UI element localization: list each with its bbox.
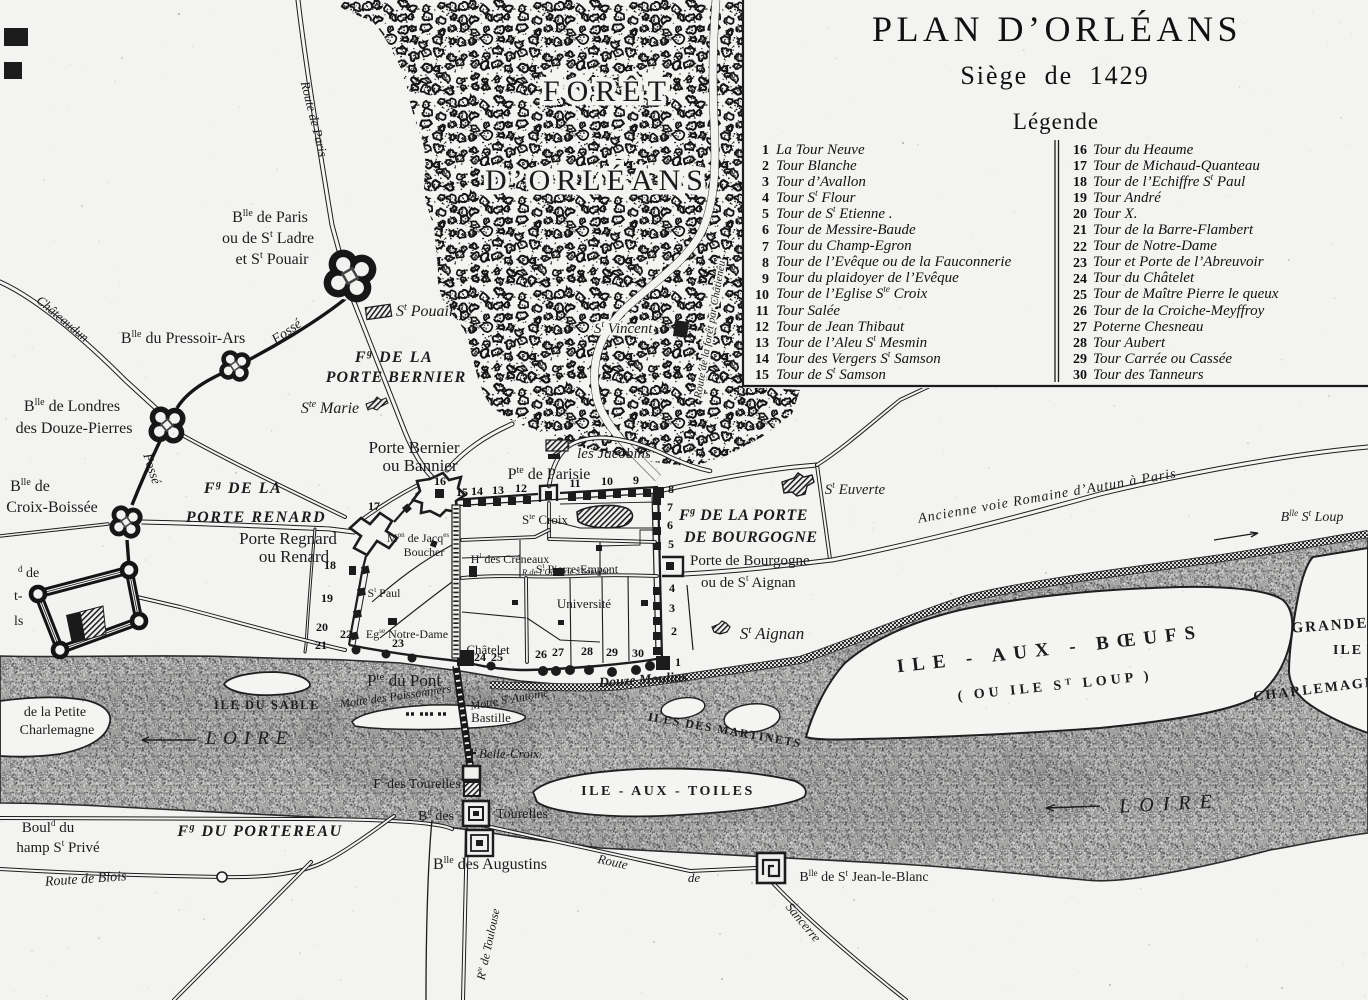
svg-text:ILE DU SABLE: ILE DU SABLE — [214, 698, 320, 712]
svg-text:Poterne Chesneau: Poterne Chesneau — [1092, 319, 1203, 335]
svg-text:Bastille: Bastille — [471, 710, 511, 725]
svg-text:LOIRE: LOIRE — [205, 728, 295, 749]
svg-text:3: 3 — [669, 601, 675, 615]
svg-text:22: 22 — [1073, 240, 1087, 255]
svg-text:les Jacobins: les Jacobins — [577, 446, 651, 462]
svg-text:27: 27 — [552, 645, 564, 659]
svg-text:9: 9 — [633, 473, 639, 487]
svg-text:19: 19 — [1073, 191, 1087, 206]
svg-text:Porte Bernier: Porte Bernier — [368, 438, 459, 457]
svg-text:17: 17 — [1073, 159, 1087, 174]
svg-text:25: 25 — [491, 650, 503, 664]
svg-text:5: 5 — [762, 207, 769, 222]
svg-text:4: 4 — [762, 191, 769, 206]
svg-text:PLAN D’ORLÉANS: PLAN D’ORLÉANS — [872, 9, 1242, 49]
svg-text:5: 5 — [668, 537, 674, 551]
svg-text:des Douze-Pierres: des Douze-Pierres — [16, 420, 133, 437]
svg-text:15: 15 — [456, 485, 468, 499]
svg-text:Charlemagne: Charlemagne — [20, 723, 95, 738]
svg-text:9: 9 — [762, 272, 769, 287]
svg-text:6: 6 — [667, 518, 673, 532]
svg-text:Tour Carrée ou Cassée: Tour Carrée ou Cassée — [1093, 351, 1232, 367]
svg-text:18: 18 — [1073, 175, 1087, 190]
svg-text:St Euverte: St Euverte — [825, 480, 886, 498]
svg-text:Tour de Jean Thibaut: Tour de Jean Thibaut — [776, 319, 905, 335]
svg-text:6: 6 — [762, 223, 769, 238]
svg-text:30: 30 — [1073, 368, 1087, 383]
svg-text:PORTE BERNIER: PORTE BERNIER — [325, 369, 467, 386]
svg-text:Fg DU PORTEREAU: Fg DU PORTEREAU — [176, 822, 342, 840]
svg-text:24: 24 — [1073, 272, 1087, 287]
svg-text:14: 14 — [755, 352, 769, 367]
svg-text:8: 8 — [762, 256, 769, 271]
svg-text:4: 4 — [669, 581, 675, 595]
svg-text:10: 10 — [755, 288, 769, 303]
svg-text:15: 15 — [755, 368, 769, 383]
svg-text:Tour de la Croiche-Meyffroy: Tour de la Croiche-Meyffroy — [1093, 303, 1265, 319]
svg-text:Croix-Boissée: Croix-Boissée — [6, 499, 98, 516]
svg-text:Tour de l’Echiffre St Paul: Tour de l’Echiffre St Paul — [1093, 172, 1245, 190]
svg-text:18: 18 — [324, 558, 336, 572]
svg-text:DE BOURGOGNE: DE BOURGOGNE — [683, 529, 818, 546]
svg-text:Egse Notre-Dame: Egse Notre-Dame — [366, 627, 448, 641]
svg-text:ILE: ILE — [1333, 643, 1363, 658]
svg-text:Tour de Notre-Dame: Tour de Notre-Dame — [1093, 238, 1217, 254]
svg-text:Tour de St Samson: Tour de St Samson — [776, 365, 886, 383]
svg-text:Tour André: Tour André — [1093, 190, 1162, 206]
svg-text:Fg DE LA: Fg DE LA — [354, 348, 433, 366]
svg-text:Belle-Croix: Belle-Croix — [479, 746, 539, 761]
svg-text:14: 14 — [471, 484, 483, 498]
svg-text:Tour de l’Aleu St Mesmin: Tour de l’Aleu St Mesmin — [776, 333, 927, 351]
svg-text:Tour X.: Tour X. — [1093, 206, 1137, 222]
svg-text:27: 27 — [1073, 320, 1087, 335]
svg-text:St Paul: St Paul — [368, 586, 402, 600]
svg-text:Blle de St Jean-le-Blanc: Blle de St Jean-le-Blanc — [799, 868, 928, 885]
svg-text:Tour du Châtelet: Tour du Châtelet — [1093, 270, 1195, 286]
svg-text:Blle de: Blle de — [10, 477, 50, 495]
svg-text:Tour de Michaud-Quanteau: Tour de Michaud-Quanteau — [1093, 158, 1260, 174]
svg-text:Tour du Champ-Egron: Tour du Champ-Egron — [776, 238, 912, 254]
svg-text:25: 25 — [1073, 288, 1087, 303]
svg-text:Ste Croix: Ste Croix — [522, 512, 568, 527]
svg-text:20: 20 — [316, 620, 328, 634]
svg-text:1: 1 — [762, 143, 769, 158]
svg-text:12: 12 — [755, 320, 769, 335]
svg-text:Tour d’Avallon: Tour d’Avallon — [776, 174, 866, 190]
svg-text:Tour Salée: Tour Salée — [776, 303, 840, 319]
svg-text:Tour du plaidoyer de l’Evêque: Tour du plaidoyer de l’Evêque — [776, 270, 959, 286]
svg-text:Université: Université — [557, 596, 611, 611]
svg-text:11: 11 — [569, 476, 580, 490]
svg-text:28: 28 — [1073, 336, 1087, 351]
svg-text:ls: ls — [14, 614, 23, 629]
svg-text:de: de — [688, 870, 701, 885]
svg-text:de la Petite: de la Petite — [24, 705, 86, 720]
svg-text:Ft des Tourelles: Ft des Tourelles — [373, 775, 461, 792]
svg-text:Tour de Maître Pierre le queux: Tour de Maître Pierre le queux — [1093, 286, 1279, 302]
svg-text:22: 22 — [340, 627, 352, 641]
svg-text:Tour des Tanneurs: Tour des Tanneurs — [1093, 367, 1204, 383]
svg-text:ou Bannier: ou Bannier — [382, 456, 457, 475]
svg-text:Boucher: Boucher — [404, 545, 445, 559]
svg-text:Tour de la Barre-Flambert: Tour de la Barre-Flambert — [1093, 222, 1254, 238]
svg-text:7: 7 — [667, 500, 673, 514]
svg-text:Tour Aubert: Tour Aubert — [1093, 335, 1166, 351]
svg-text:2: 2 — [671, 624, 677, 638]
svg-text:11: 11 — [756, 304, 769, 319]
svg-text:21: 21 — [1073, 223, 1087, 238]
svg-text:23: 23 — [392, 636, 404, 650]
svg-text:16: 16 — [434, 474, 446, 488]
svg-text:10: 10 — [601, 474, 613, 488]
svg-text:D’ORLÉANS: D’ORLÉANS — [485, 164, 709, 197]
svg-text:Fg DE LA PORTE: Fg DE LA PORTE — [678, 506, 808, 524]
svg-text:19: 19 — [321, 591, 333, 605]
svg-text:Siège de 1429: Siège de 1429 — [960, 61, 1149, 90]
svg-text:Bd des: Bd des — [418, 807, 454, 824]
svg-text:ou de St Aignan: ou de St Aignan — [701, 573, 796, 591]
svg-text:30: 30 — [632, 646, 644, 660]
svg-text:3: 3 — [762, 175, 769, 190]
svg-text:8: 8 — [668, 482, 674, 496]
svg-text:Porte Regnard: Porte Regnard — [239, 529, 337, 548]
svg-text:Bould du: Bould du — [22, 818, 75, 836]
svg-text:21: 21 — [315, 638, 327, 652]
svg-text:23: 23 — [1073, 256, 1087, 271]
svg-text:Fg DE LA: Fg DE LA — [203, 479, 282, 497]
svg-text:ou de St Ladre: ou de St Ladre — [222, 229, 314, 247]
svg-text:26: 26 — [1073, 304, 1087, 319]
svg-text:t-: t- — [14, 589, 23, 604]
svg-text:7: 7 — [762, 240, 769, 255]
svg-text:Tourelles: Tourelles — [496, 807, 548, 822]
svg-text:13: 13 — [492, 483, 504, 497]
svg-text:Mon de Jacqes: Mon de Jacqes — [387, 531, 449, 545]
svg-text:29: 29 — [1073, 352, 1087, 367]
svg-text:Tour de l’Evêque ou de la Fauc: Tour de l’Evêque ou de la Fauconnerie — [776, 254, 1012, 270]
svg-text:28: 28 — [581, 644, 593, 658]
svg-text:Tour de Messire-Baude: Tour de Messire-Baude — [776, 222, 916, 238]
svg-text:hamp St Privé: hamp St Privé — [16, 838, 100, 856]
svg-text:Tour de l’Eglise Ste Croix: Tour de l’Eglise Ste Croix — [776, 284, 928, 302]
svg-text:16: 16 — [1073, 143, 1087, 158]
svg-text:1: 1 — [675, 655, 681, 669]
svg-text:et St Pouair: et St Pouair — [235, 250, 309, 268]
svg-text:20: 20 — [1073, 207, 1087, 222]
svg-text:12: 12 — [515, 481, 527, 495]
svg-text:FORÊT: FORÊT — [543, 75, 673, 108]
svg-text:Châtelet: Châtelet — [466, 642, 510, 657]
svg-text:PORTE RENARD: PORTE RENARD — [185, 509, 326, 526]
svg-text:17: 17 — [368, 499, 380, 513]
svg-text:Porte de Bourgogne: Porte de Bourgogne — [690, 553, 810, 569]
svg-text:Légende: Légende — [1013, 109, 1099, 134]
svg-text:Tour des Vergers St Samson: Tour des Vergers St Samson — [776, 349, 941, 367]
svg-text:ou Renard: ou Renard — [259, 547, 330, 566]
svg-text:Tour Blanche: Tour Blanche — [776, 158, 857, 174]
svg-text:13: 13 — [755, 336, 769, 351]
svg-text:St Pierre-Empont: St Pierre-Empont — [536, 562, 619, 576]
svg-text:Tour du Heaume: Tour du Heaume — [1093, 142, 1194, 158]
svg-text:26: 26 — [535, 647, 547, 661]
svg-text:2: 2 — [762, 159, 769, 174]
svg-text:24: 24 — [474, 650, 486, 664]
svg-text:La Tour Neuve: La Tour Neuve — [775, 142, 865, 158]
svg-text:ILE - AUX - TOILES: ILE - AUX - TOILES — [581, 784, 755, 799]
svg-text:Tour et Porte de l’Abreuvoir: Tour et Porte de l’Abreuvoir — [1093, 254, 1264, 270]
svg-text:29: 29 — [606, 645, 618, 659]
